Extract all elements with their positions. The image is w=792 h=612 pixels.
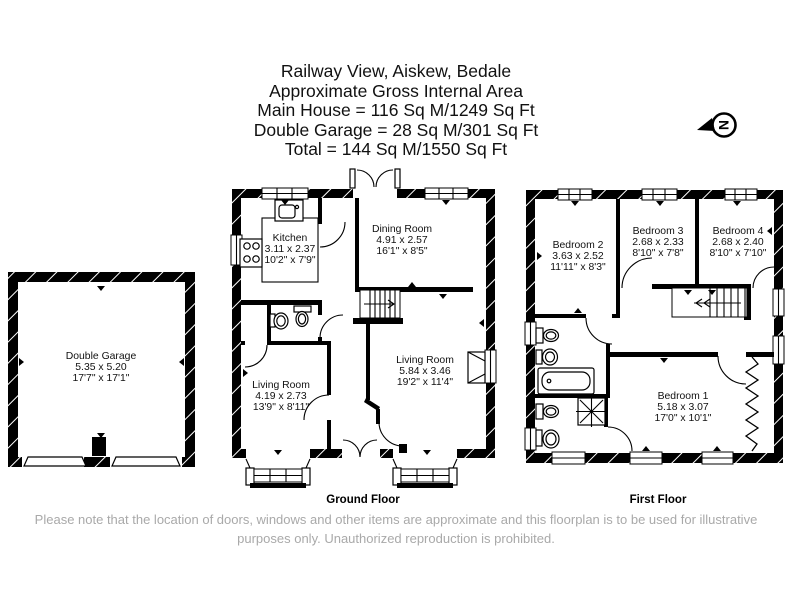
first-floor-caption: First Floor bbox=[578, 494, 738, 506]
first-floor-plan bbox=[520, 185, 792, 470]
french-doors bbox=[342, 440, 380, 458]
toilet-icon bbox=[536, 404, 559, 419]
title-block: Railway View, Aiskew, Bedale Approximate… bbox=[0, 62, 792, 160]
fireplace-nook bbox=[468, 352, 485, 383]
ground-floor-caption: Ground Floor bbox=[283, 494, 443, 506]
dimension-ticks bbox=[537, 201, 772, 451]
total-area: Total = 144 Sq M/1550 Sq Ft bbox=[0, 140, 792, 160]
garage-plan bbox=[2, 266, 214, 478]
hob-icon bbox=[240, 239, 262, 267]
stairs-down-icon bbox=[672, 288, 747, 317]
north-compass-icon: N bbox=[688, 100, 752, 156]
wc-toilet-icon bbox=[294, 306, 311, 327]
basin-icon bbox=[536, 349, 558, 365]
dimension-ticks bbox=[19, 286, 184, 438]
disclaimer-line-2: purposes only. Unauthorized reproduction… bbox=[0, 529, 792, 548]
shower-icon bbox=[576, 396, 607, 427]
compass-letter: N bbox=[716, 120, 732, 130]
ground-windows bbox=[231, 188, 496, 383]
first-outer-walls bbox=[526, 190, 783, 463]
main-house-area: Main House = 116 Sq M/1249 Sq Ft bbox=[0, 101, 792, 121]
front-door-arc bbox=[357, 170, 374, 187]
property-address: Railway View, Aiskew, Bedale bbox=[0, 62, 792, 82]
bathtub-icon bbox=[538, 368, 594, 394]
area-subtitle: Approximate Gross Internal Area bbox=[0, 82, 792, 102]
first-windows bbox=[525, 189, 784, 464]
wardrobe-zigzag bbox=[746, 357, 758, 451]
bay-window-right bbox=[393, 449, 457, 488]
disclaimer-line-1: Please note that the location of doors, … bbox=[0, 510, 792, 529]
disclaimer: Please note that the location of doors, … bbox=[0, 510, 792, 548]
floorplan-page: Railway View, Aiskew, Bedale Approximate… bbox=[0, 0, 792, 612]
basin-icon bbox=[536, 430, 559, 448]
front-door-arc bbox=[376, 170, 393, 187]
stairs-up-icon bbox=[360, 290, 400, 318]
kitchen-sink-icon bbox=[275, 200, 303, 221]
toilet-icon bbox=[536, 328, 559, 343]
garage-center-pier bbox=[92, 437, 106, 456]
wc-basin-icon bbox=[270, 313, 288, 329]
kitchen-counter bbox=[262, 218, 318, 282]
garage-area: Double Garage = 28 Sq M/301 Sq Ft bbox=[0, 121, 792, 141]
entrance-porch bbox=[350, 169, 400, 199]
ground-floor-plan bbox=[228, 162, 514, 498]
compass-needle bbox=[697, 118, 715, 131]
